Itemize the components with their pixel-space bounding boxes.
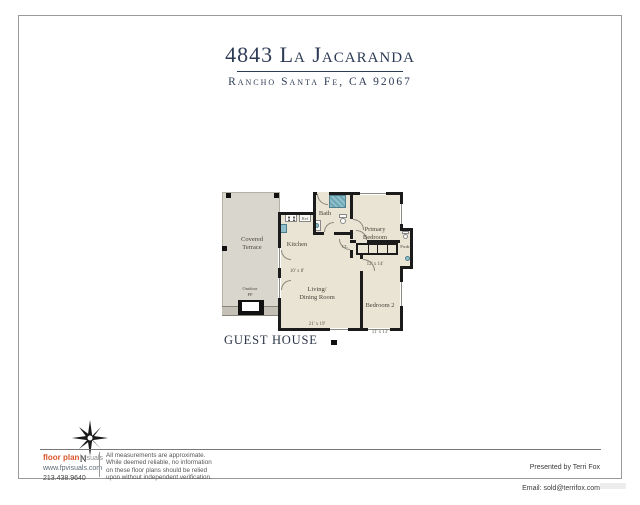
title-underline (237, 71, 403, 72)
page-title: 4843 La Jacaranda (0, 42, 640, 68)
wall (400, 269, 403, 282)
page-subtitle: Rancho Santa Fe, CA 92067 (0, 76, 640, 88)
window (360, 192, 386, 195)
watermark (600, 483, 626, 489)
covered-terrace-floor (222, 192, 280, 316)
footer-disclaimer: All measurements are approximate. While … (106, 452, 212, 482)
brand-primary: floor plan (43, 453, 79, 462)
wall (278, 212, 316, 215)
room-label-terrace: Covered Terrace (230, 236, 274, 252)
outdoor-fireplace-box (242, 302, 259, 311)
room-label-outdoor-fp: Outdoor FP (236, 286, 264, 297)
room-label-pwdr: Pwdr (396, 244, 414, 250)
brand-website[interactable]: www.fpvisuals.com (43, 464, 95, 474)
room-label-primary: Primary Bedroom 12' x 14' (352, 206, 398, 289)
plan-caption: GUEST HOUSE (224, 333, 318, 348)
wall (316, 232, 324, 235)
room-name: Living/ Dining Room (286, 286, 348, 302)
footer-vertical-divider (99, 452, 100, 477)
shower (329, 195, 346, 208)
footer-presenter-block: Presented by Terri Fox Email: sold@terri… (522, 452, 600, 505)
footer-brand-block: floor plan|visuals www.fpvisuals.com 213… (43, 452, 95, 484)
room-label-bedroom2: Bedroom 2 11' x 13' (356, 282, 404, 356)
terrace-post (222, 246, 227, 251)
presented-by: Presented by Terri Fox (522, 463, 600, 474)
terrace-post (226, 193, 231, 198)
header: 4843 La Jacaranda Rancho Santa Fe, CA 92… (0, 42, 640, 88)
bath-toilet-bowl (340, 218, 346, 224)
wall (400, 192, 403, 204)
room-dims: 11' x 13' (356, 330, 404, 336)
brand-phone: 213.438.9640 (43, 474, 95, 484)
room-dims: 12' x 14' (352, 262, 398, 268)
room-label-closet: CL (340, 244, 350, 250)
terrace-post (274, 193, 279, 198)
room-label-bath: Bath (313, 210, 337, 218)
wall (278, 298, 281, 330)
footer-divider-line (40, 449, 601, 450)
room-name: Kitchen (280, 241, 314, 249)
presenter-email[interactable]: Email: sold@terrifox.com (522, 484, 600, 495)
wall (329, 192, 360, 195)
room-name: Bedroom 2 (356, 302, 404, 310)
powder-toilet-bowl (403, 234, 408, 239)
window (400, 204, 403, 224)
brand-logo: floor plan|visuals (43, 452, 95, 464)
floor-plan: Ref C (222, 190, 422, 352)
room-name: Primary Bedroom (352, 226, 398, 242)
room-dims: 21' x 19' (286, 322, 348, 328)
